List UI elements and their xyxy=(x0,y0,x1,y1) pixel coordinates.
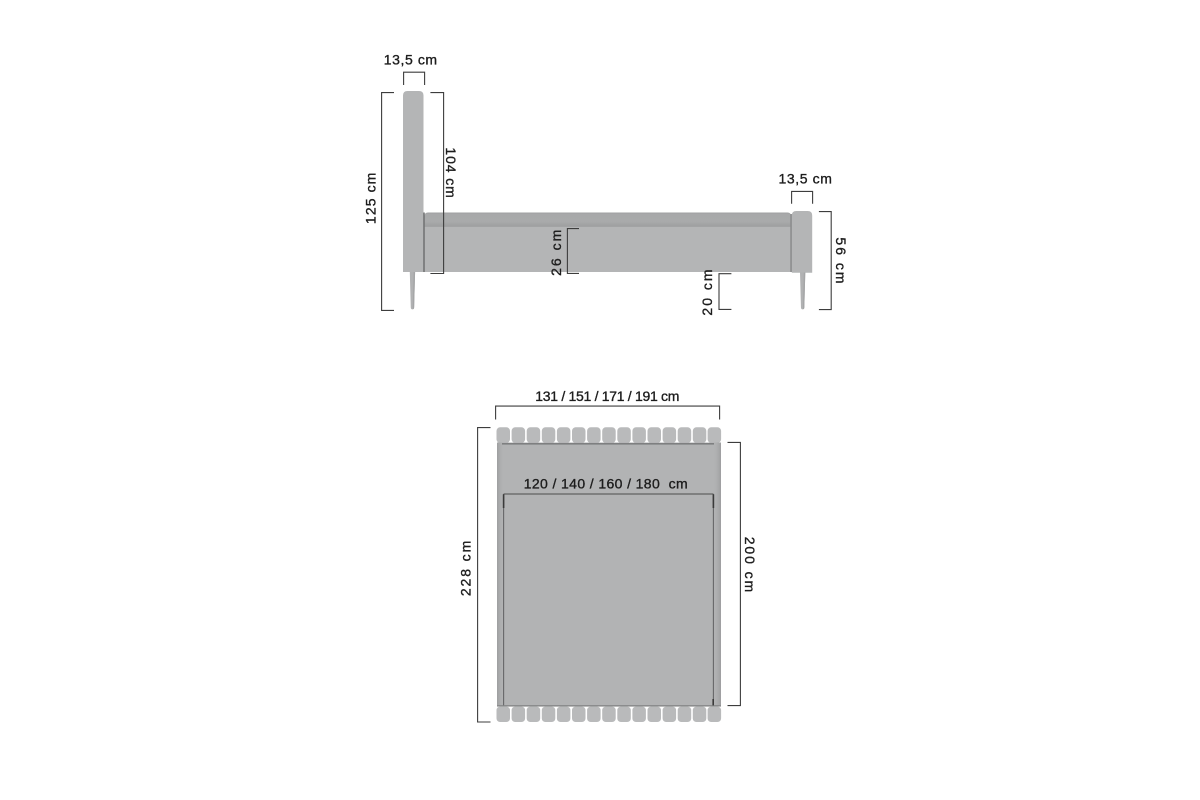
svg-text:125 cm: 125 cm xyxy=(363,172,379,225)
svg-text:200 cm: 200 cm xyxy=(742,537,758,594)
svg-text:20 cm: 20 cm xyxy=(699,267,715,315)
svg-text:13,5 cm: 13,5 cm xyxy=(779,171,833,187)
svg-text:26 cm: 26 cm xyxy=(548,228,564,276)
svg-text:13,5 cm: 13,5 cm xyxy=(384,52,438,68)
svg-text:120 / 140 / 160 / 180 cm: 120 / 140 / 160 / 180 cm xyxy=(524,475,688,491)
svg-text:228 cm: 228 cm xyxy=(458,539,474,596)
svg-text:131 / 151 / 171 / 191 cm: 131 / 151 / 171 / 191 cm xyxy=(535,388,679,404)
svg-text:104 cm: 104 cm xyxy=(443,147,459,198)
svg-text:56 cm: 56 cm xyxy=(833,237,849,285)
